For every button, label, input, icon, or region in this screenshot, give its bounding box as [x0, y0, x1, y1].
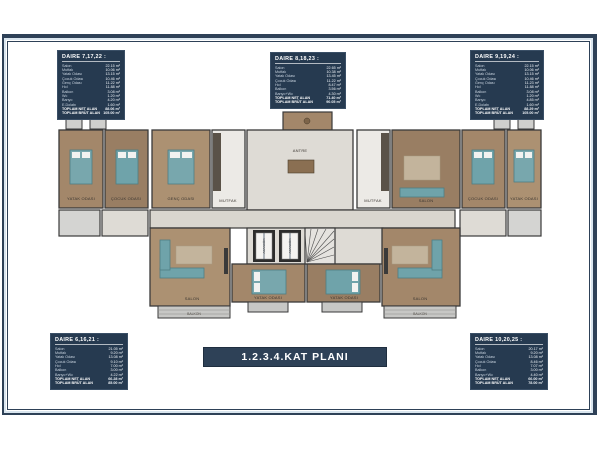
elevator-1: ASANSÖR: [253, 230, 275, 262]
unit-info-box-daire-6-16-21: DAIRE 6,16,21 : Salon21.05 m²Mutfak9.20 …: [50, 333, 128, 390]
unit-info-box-daire-8-18-23: DAIRE 8,18,23 : Salon22.65 m²Mutfak10.38…: [270, 52, 346, 109]
room-label: YATAK ODASI: [510, 196, 538, 201]
bed-icon: [514, 150, 534, 182]
room-label: YATAK ODASI: [254, 295, 282, 300]
unit-rows: Salon22.15 m²Mutfak10.06 m²Yatak Odası13…: [62, 64, 120, 116]
bed-icon: [326, 270, 360, 294]
unit-info-box-daire-9-19-24: DAIRE 9,19,24 : Salon22.15 m²Mutfak10.06…: [470, 50, 544, 120]
bed-icon: [472, 150, 494, 184]
elevator-label: ASANSÖR: [288, 238, 292, 254]
bed-icon: [116, 150, 138, 184]
unit-info-box-daire-10-20-25: DAIRE 10,20,25 : Salon20.17 m²Mutfak9.20…: [470, 333, 548, 390]
room-label: SALON: [413, 296, 428, 301]
bed-icon: [70, 150, 92, 184]
room-label: ÇOCUK ODASI: [468, 196, 498, 201]
room-label: MUTFAK: [219, 198, 237, 203]
info-row: TOPLAM BRÜT ALAN85.00 m²: [55, 381, 123, 385]
room-label: SALON: [185, 296, 200, 301]
info-row: TOPLAM BRÜT ALAN105.00 m²: [475, 111, 539, 115]
unit-title: DAIRE 10,20,25 :: [475, 337, 543, 345]
dining-table: [288, 160, 314, 173]
unit-rows: Salon22.65 m²Mutfak10.38 m²Yatak Odası13…: [275, 66, 341, 105]
stairs-icon: [305, 228, 335, 264]
sofa-icon: [400, 156, 444, 197]
corridor: [150, 210, 455, 228]
kitchen-counter: [381, 133, 389, 191]
room-label: SALON: [419, 198, 434, 203]
page: ASANSÖR ASANSÖR: [0, 0, 600, 450]
info-row: TOPLAM BRÜT ALAN78.00 m²: [475, 381, 543, 385]
room-label: ANTRE: [293, 148, 308, 153]
bed-icon: [252, 270, 286, 294]
unit-title: DAIRE 7,17,22 :: [62, 54, 120, 62]
room-label: YATAK ODASI: [330, 295, 358, 300]
unit-rows: Salon20.17 m²Mutfak9.20 m²Yatak Odası13.…: [475, 347, 543, 386]
unit-title: DAIRE 6,16,21 :: [55, 337, 123, 345]
elevator-2: ASANSÖR: [279, 230, 301, 262]
unit-title: DAIRE 9,19,24 :: [475, 54, 539, 62]
unit-rows: Salon22.15 m²Mutfak10.06 m²Yatak Odası13…: [475, 64, 539, 116]
info-row: TOPLAM BRÜT ALAN90.05 m²: [275, 100, 341, 104]
elevator-label: ASANSÖR: [262, 238, 266, 254]
room-label: MUTFAK: [364, 198, 382, 203]
info-row: TOPLAM BRÜT ALAN105.00 m²: [62, 111, 120, 115]
room-label: GENÇ ODASI: [167, 196, 194, 201]
room-label: YATAK ODASI: [67, 196, 95, 201]
floor-plan-title: 1.2.3.4.KAT PLANI: [203, 347, 387, 367]
unit-info-box-daire-7-17-22: DAIRE 7,17,22 : Salon22.15 m²Mutfak10.06…: [57, 50, 125, 120]
bed-icon: [168, 150, 194, 184]
room-label: ÇOCUK ODASI: [111, 196, 141, 201]
balcony-label: BALKON: [413, 312, 427, 316]
core: ASANSÖR ASANSÖR: [247, 228, 383, 264]
balcony-label: BALKON: [187, 312, 201, 316]
unit-title: DAIRE 8,18,23 :: [275, 56, 341, 64]
kitchen-counter: [213, 133, 221, 191]
unit-rows: Salon21.05 m²Mutfak9.20 m²Yatak Odası13.…: [55, 347, 123, 386]
balcony-bays-top: [66, 112, 534, 130]
